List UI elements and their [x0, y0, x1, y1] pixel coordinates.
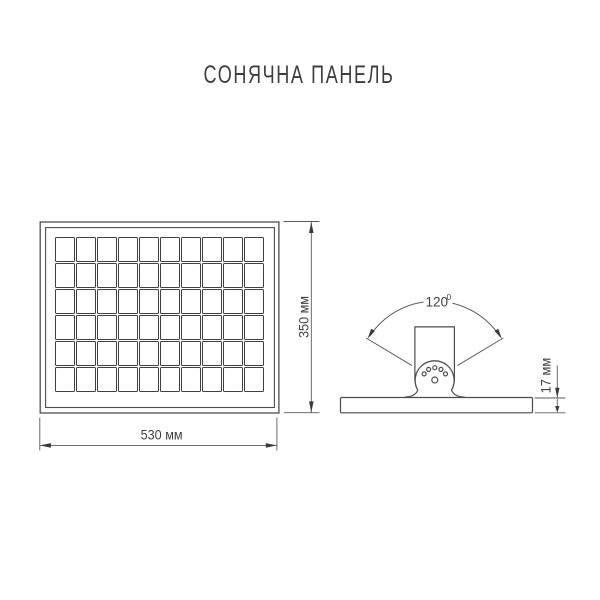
svg-text:350 мм: 350 мм	[296, 296, 312, 338]
svg-text:СОНЯЧНА ПАНЕЛЬ: СОНЯЧНА ПАНЕЛЬ	[204, 61, 395, 89]
svg-text:0: 0	[447, 292, 452, 302]
svg-text:530 мм: 530 мм	[141, 427, 183, 443]
svg-text:17 мм: 17 мм	[537, 358, 553, 394]
svg-text:120: 120	[426, 295, 449, 310]
